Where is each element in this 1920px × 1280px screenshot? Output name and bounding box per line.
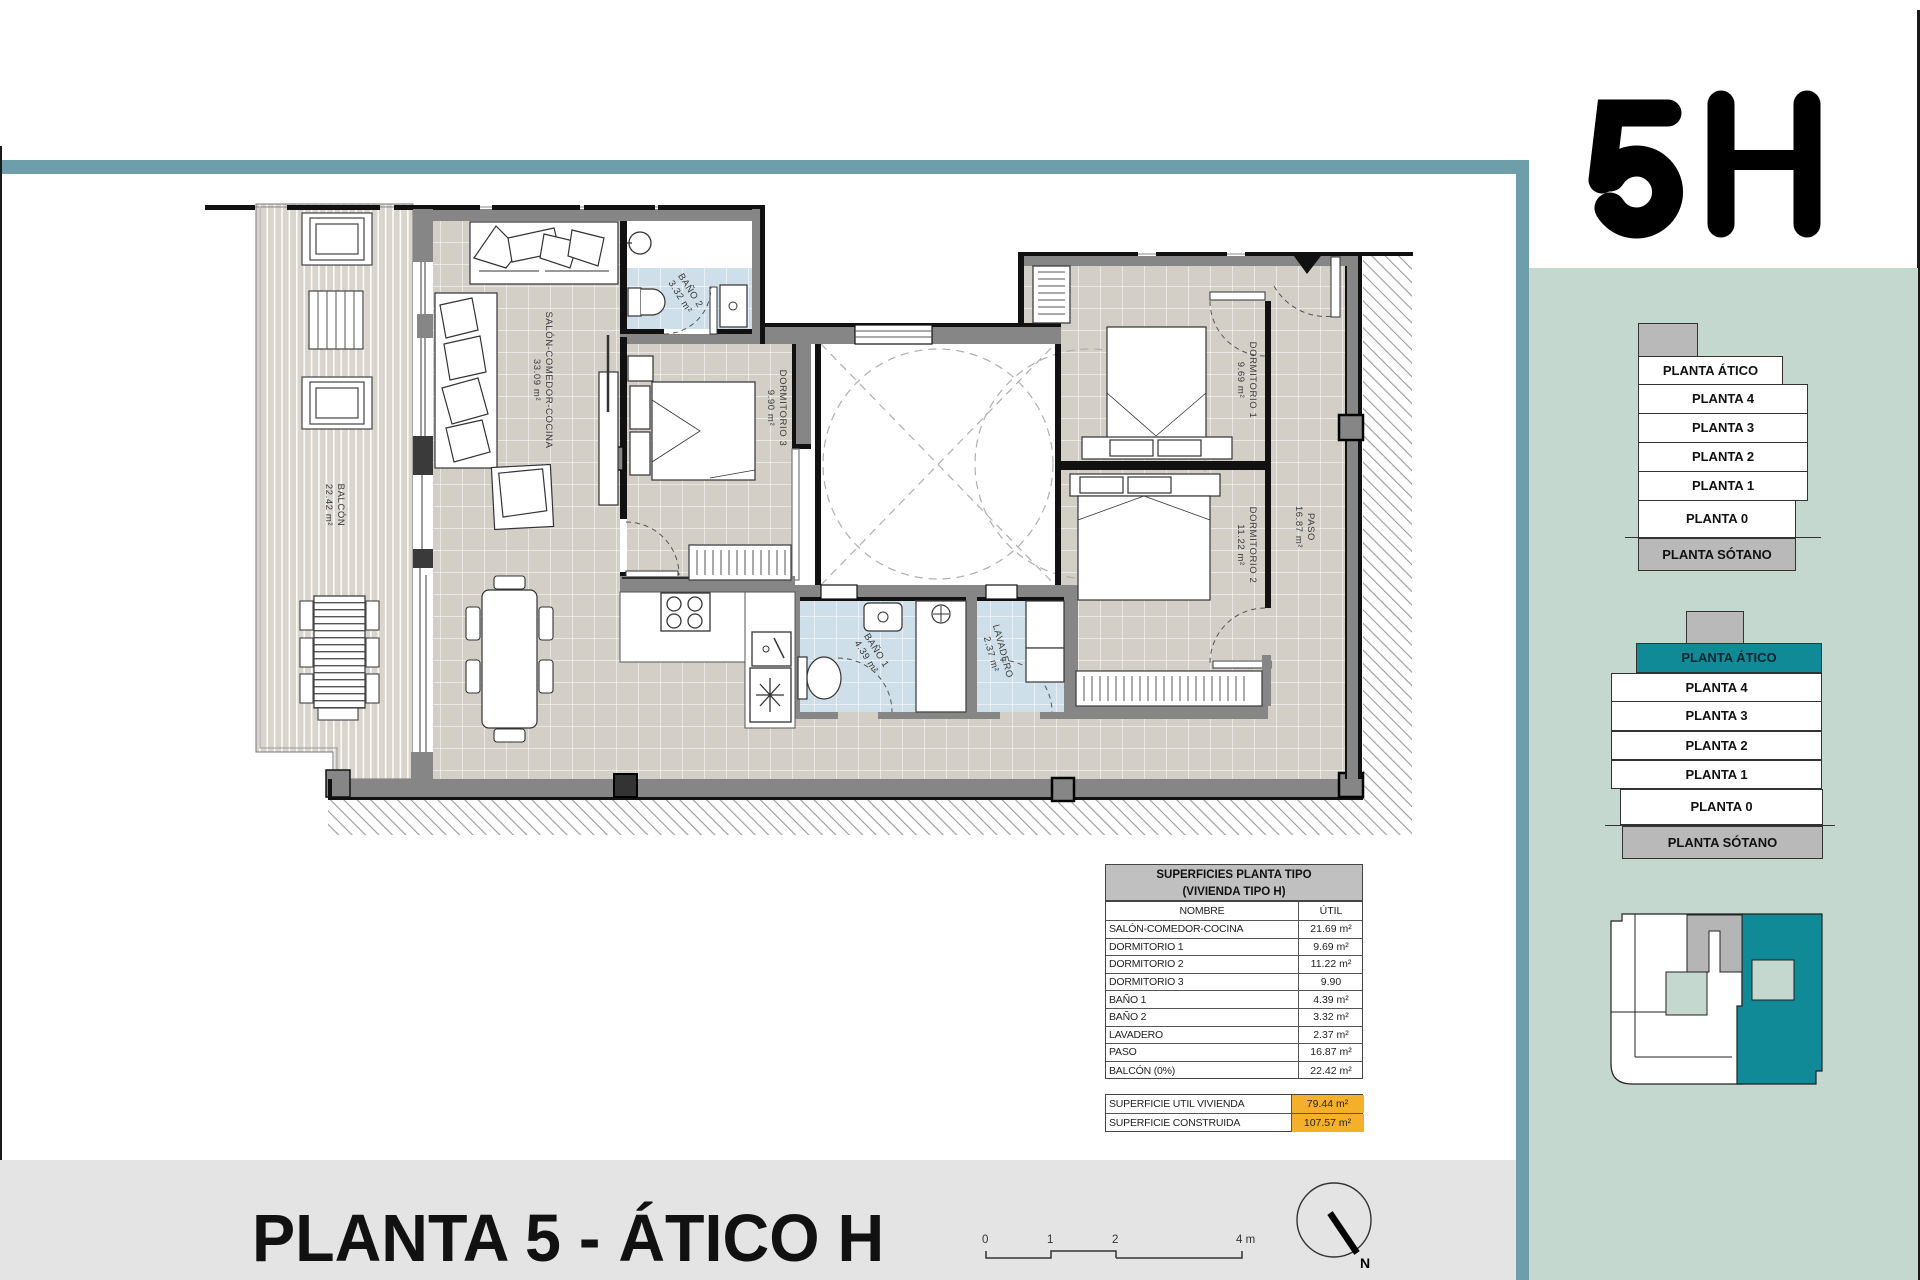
svg-text:DORMITORIO 3: DORMITORIO 3 xyxy=(777,370,788,447)
svg-text:SALÓN-COMEDOR-COCINA: SALÓN-COMEDOR-COCINA xyxy=(543,311,554,448)
svg-text:9.90 m²: 9.90 m² xyxy=(765,390,776,426)
svg-text:1: 1 xyxy=(1047,1234,1053,1246)
svg-text:N: N xyxy=(1360,1255,1370,1271)
svg-text:33.09 m²: 33.09 m² xyxy=(531,359,542,401)
svg-text:4 m: 4 m xyxy=(1236,1234,1255,1246)
svg-text:DORMITORIO 1: DORMITORIO 1 xyxy=(1247,342,1258,419)
svg-text:BALCÓN: BALCÓN xyxy=(335,484,346,527)
svg-text:2: 2 xyxy=(1112,1234,1118,1246)
svg-text:DORMITORIO 2: DORMITORIO 2 xyxy=(1247,507,1258,584)
svg-text:9.69 m²: 9.69 m² xyxy=(1235,362,1246,398)
svg-text:PASO: PASO xyxy=(1305,513,1316,541)
svg-text:11.22 m²: 11.22 m² xyxy=(1235,524,1246,566)
svg-text:0: 0 xyxy=(982,1234,988,1246)
svg-text:16.87 m²: 16.87 m² xyxy=(1293,506,1304,548)
svg-text:22.42 m²: 22.42 m² xyxy=(323,484,334,526)
